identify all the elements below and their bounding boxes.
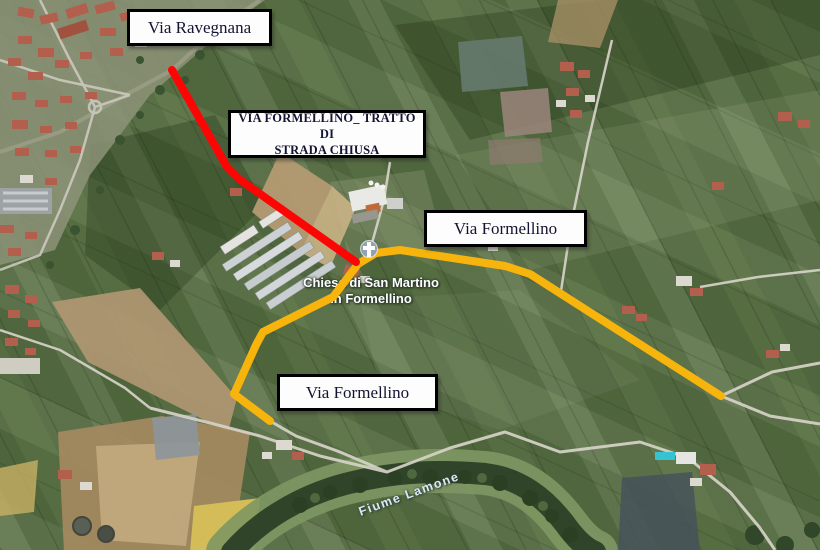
label-via-formellino-lower: Via Formellino <box>277 374 438 411</box>
route-annotations <box>0 0 820 550</box>
closed-road-line <box>172 70 356 262</box>
label-via-formellino-upper: Via Formellino <box>424 210 587 247</box>
label-strada-chiusa: VIA FORMELLINO_ TRATTO DI STRADA CHIUSA <box>228 110 426 158</box>
label-via-formellino-upper-text: Via Formellino <box>454 219 557 239</box>
label-strada-chiusa-line1: VIA FORMELLINO_ TRATTO DI <box>231 110 423 143</box>
label-strada-chiusa-line2: STRADA CHIUSA <box>274 142 379 158</box>
label-via-formellino-lower-text: Via Formellino <box>306 383 409 403</box>
church-marker-icon <box>361 241 378 258</box>
label-via-ravegnana-text: Via Ravegnana <box>148 18 251 38</box>
map-figure: Chiesa di San Martino in Formellino Fium… <box>0 0 820 550</box>
label-via-ravegnana: Via Ravegnana <box>127 9 272 46</box>
